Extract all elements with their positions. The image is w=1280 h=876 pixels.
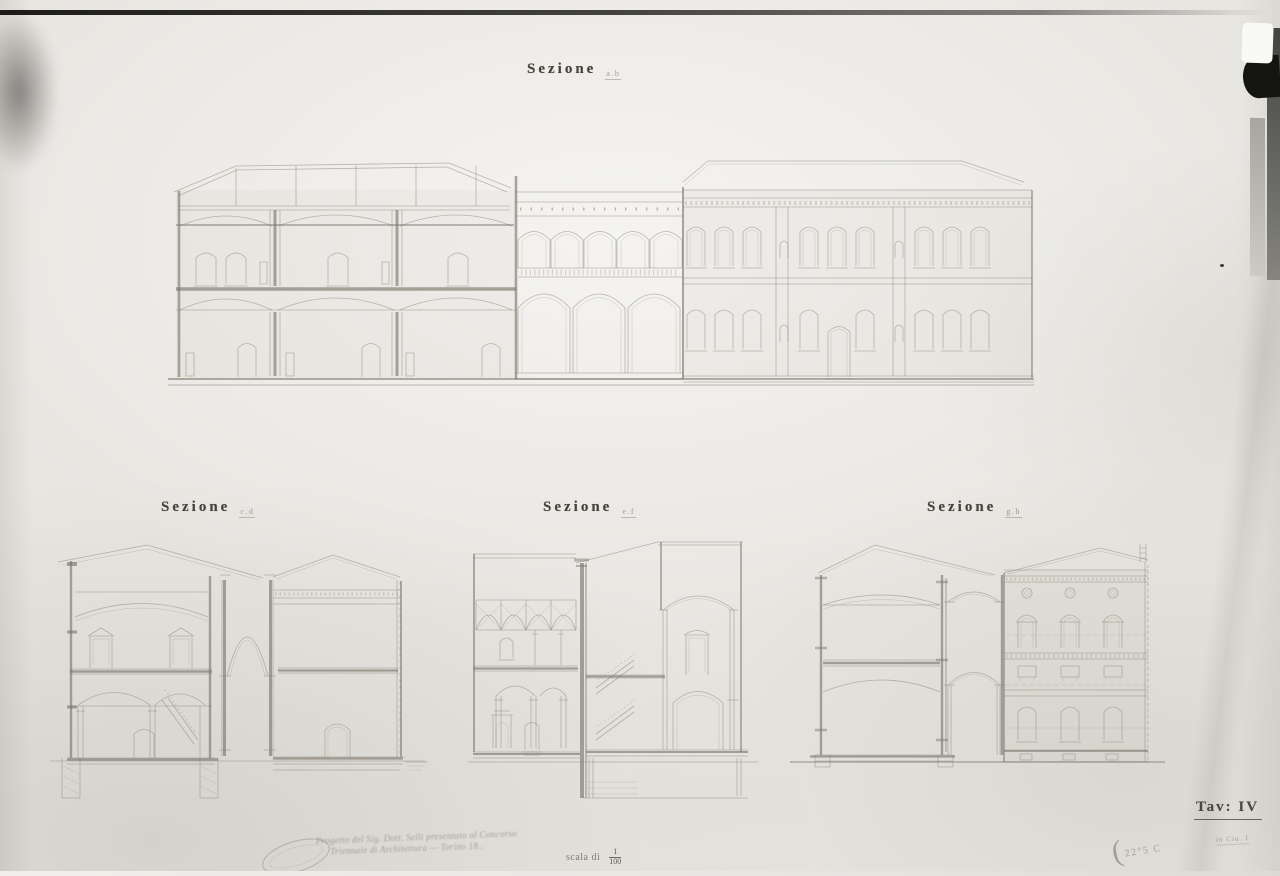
title-letters: e.f — [621, 507, 636, 518]
drawing-sezione-cd — [50, 540, 450, 820]
title-sezione-cd: Sezione c.d — [161, 499, 255, 518]
photo-edge-dot — [1220, 264, 1224, 267]
section-wall-wash — [176, 190, 516, 380]
loggia-linework — [515, 192, 683, 379]
photo-top-edge-bar — [0, 10, 1268, 15]
scale-fraction-denominator: 100 — [609, 857, 621, 866]
title-sezione-ab: Sezione a.b — [527, 61, 621, 80]
facade-wall-wash — [683, 190, 1032, 380]
photo-right-edge-wedge — [1250, 118, 1265, 276]
cd-cut-walls — [67, 561, 403, 760]
ef-cut-walls — [473, 542, 748, 798]
pencil-scribble: in Cia. 1 — [1216, 833, 1250, 846]
drawing-sezione-gh — [790, 540, 1170, 810]
title-letters: a.b — [605, 69, 621, 80]
plate-number: Tav: IV — [1194, 799, 1262, 820]
drawing-sezione-ab — [166, 146, 1038, 394]
pencil-number: 22°5 C — [1124, 843, 1164, 869]
title-letters: c.d — [239, 507, 255, 518]
ef-linework — [468, 542, 758, 798]
scale-note: scala di 1 100 — [566, 852, 621, 867]
title-sezione-gh: Sezione g.h — [927, 499, 1022, 518]
title-word: Sezione — [543, 499, 612, 516]
pencil-inventory-mark: ( 22°5 C — [1111, 835, 1163, 868]
photo-right-edge-tab — [1241, 22, 1273, 63]
drawing-sezione-ef — [458, 530, 778, 822]
title-letters: g.h — [1005, 507, 1022, 518]
title-word: Sezione — [927, 499, 996, 516]
title-sezione-ef: Sezione e.f — [543, 499, 636, 518]
photo-corner-smudge — [0, 12, 58, 172]
handwritten-note: Progetto del Sig. Dott. Selli presentato… — [316, 826, 577, 858]
title-word: Sezione — [527, 61, 596, 78]
pencil-parenthesis: ( — [1109, 836, 1125, 867]
scale-fraction: 1 100 — [609, 848, 621, 867]
photo-bottom-edge — [0, 871, 1280, 876]
scale-label: scala di — [566, 852, 600, 863]
photographed-drawing-sheet: Sezione a.b — [0, 0, 1280, 876]
title-word: Sezione — [161, 499, 230, 516]
